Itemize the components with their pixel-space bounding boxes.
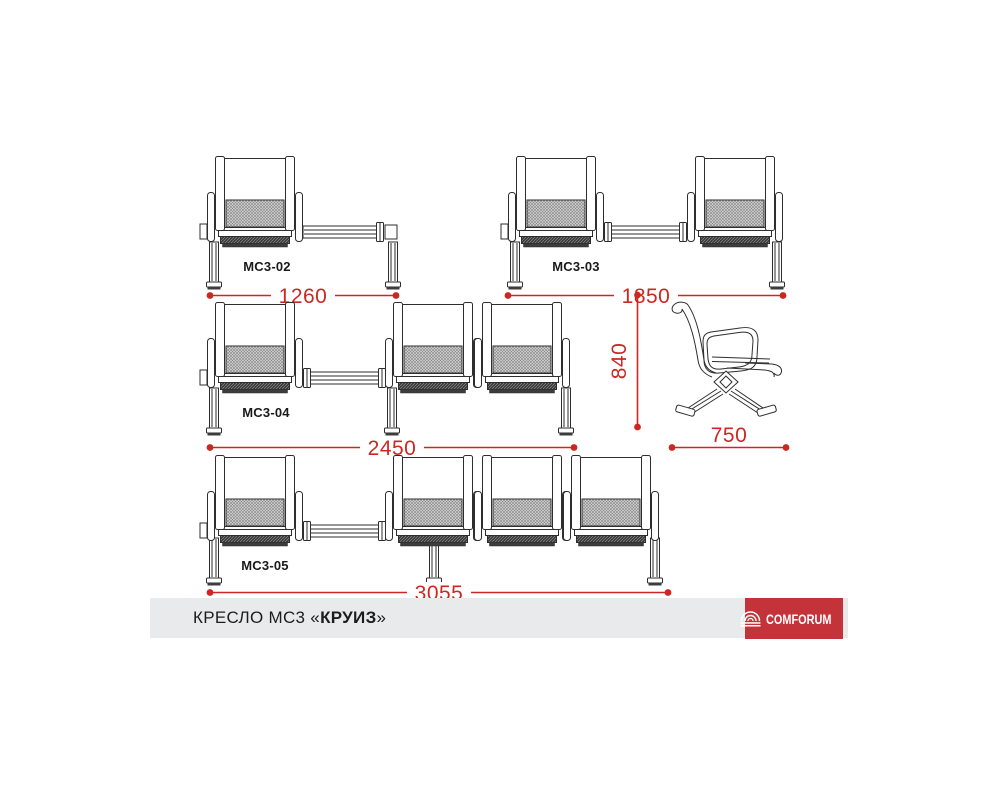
dim-value-750: 750: [711, 424, 748, 447]
dim-value-1850: 1850: [622, 285, 671, 308]
bench-label-mc3-02: МС3-02: [243, 259, 290, 274]
dim-value-840: 840: [608, 343, 631, 380]
comforum-logo: COMFORUM: [745, 598, 843, 639]
logo-text: COMFORUM: [766, 611, 832, 627]
bench-label-mc3-05: МС3-05: [241, 558, 288, 573]
product-title-name: КРУИЗ: [320, 608, 376, 627]
product-title: КРЕСЛО МС3 «КРУИЗ»: [193, 608, 386, 628]
side-view-chair: [672, 302, 781, 416]
bench-mc3-05: МС3-05: [200, 456, 663, 586]
dimension-750: 750: [669, 424, 790, 451]
drawing-sheet: МС3-02 1260 МС3-03 1850: [0, 0, 1000, 800]
bench-technical-drawing: МС3-02 1260 МС3-03 1850: [0, 0, 1000, 800]
product-title-prefix: КРЕСЛО МС3 «: [193, 608, 320, 627]
bench-mc3-04: МС3-04: [200, 303, 574, 436]
product-title-suffix: »: [377, 608, 387, 627]
dim-value-2450: 2450: [368, 437, 417, 460]
arch-logo-icon: [739, 610, 762, 627]
bench-mc3-02: МС3-02: [200, 157, 401, 290]
bench-label-mc3-03: МС3-03: [552, 259, 599, 274]
bench-mc3-03: МС3-03: [501, 157, 785, 290]
dimension-840: 840: [608, 292, 641, 431]
dimension-2450: 2450: [207, 437, 578, 460]
bench-label-mc3-04: МС3-04: [242, 405, 290, 420]
